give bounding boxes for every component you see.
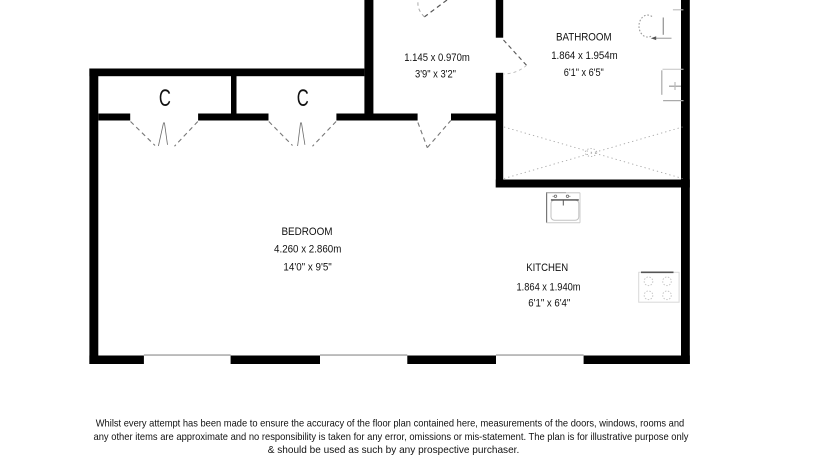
svg-text:& should be used as such by an: & should be used as such by any prospect… [268,445,520,456]
svg-text:BEDROOM: BEDROOM [281,226,332,238]
svg-text:Whilst every attempt has been: Whilst every attempt has been made to en… [96,418,685,429]
svg-text:3'9" x 3'2": 3'9" x 3'2" [415,68,456,80]
svg-text:1.864 x 1.954m: 1.864 x 1.954m [551,50,617,62]
svg-text:6'1" x 6'5": 6'1" x 6'5" [564,67,604,79]
svg-text:1.145 x 0.970m: 1.145 x 0.970m [404,52,470,64]
svg-text:C: C [297,85,309,112]
svg-text:1.864 x 1.940m: 1.864 x 1.940m [517,281,581,293]
svg-text:C: C [159,85,171,112]
svg-text:KITCHEN: KITCHEN [526,262,568,274]
svg-text:any other items are approximat: any other items are approximate and no r… [94,432,690,443]
svg-text:BATHROOM: BATHROOM [556,32,612,44]
svg-text:6'1" x 6'4": 6'1" x 6'4" [528,297,570,309]
svg-text:4.260 x 2.860m: 4.260 x 2.860m [274,244,341,256]
svg-text:14'0" x 9'5": 14'0" x 9'5" [283,261,331,273]
